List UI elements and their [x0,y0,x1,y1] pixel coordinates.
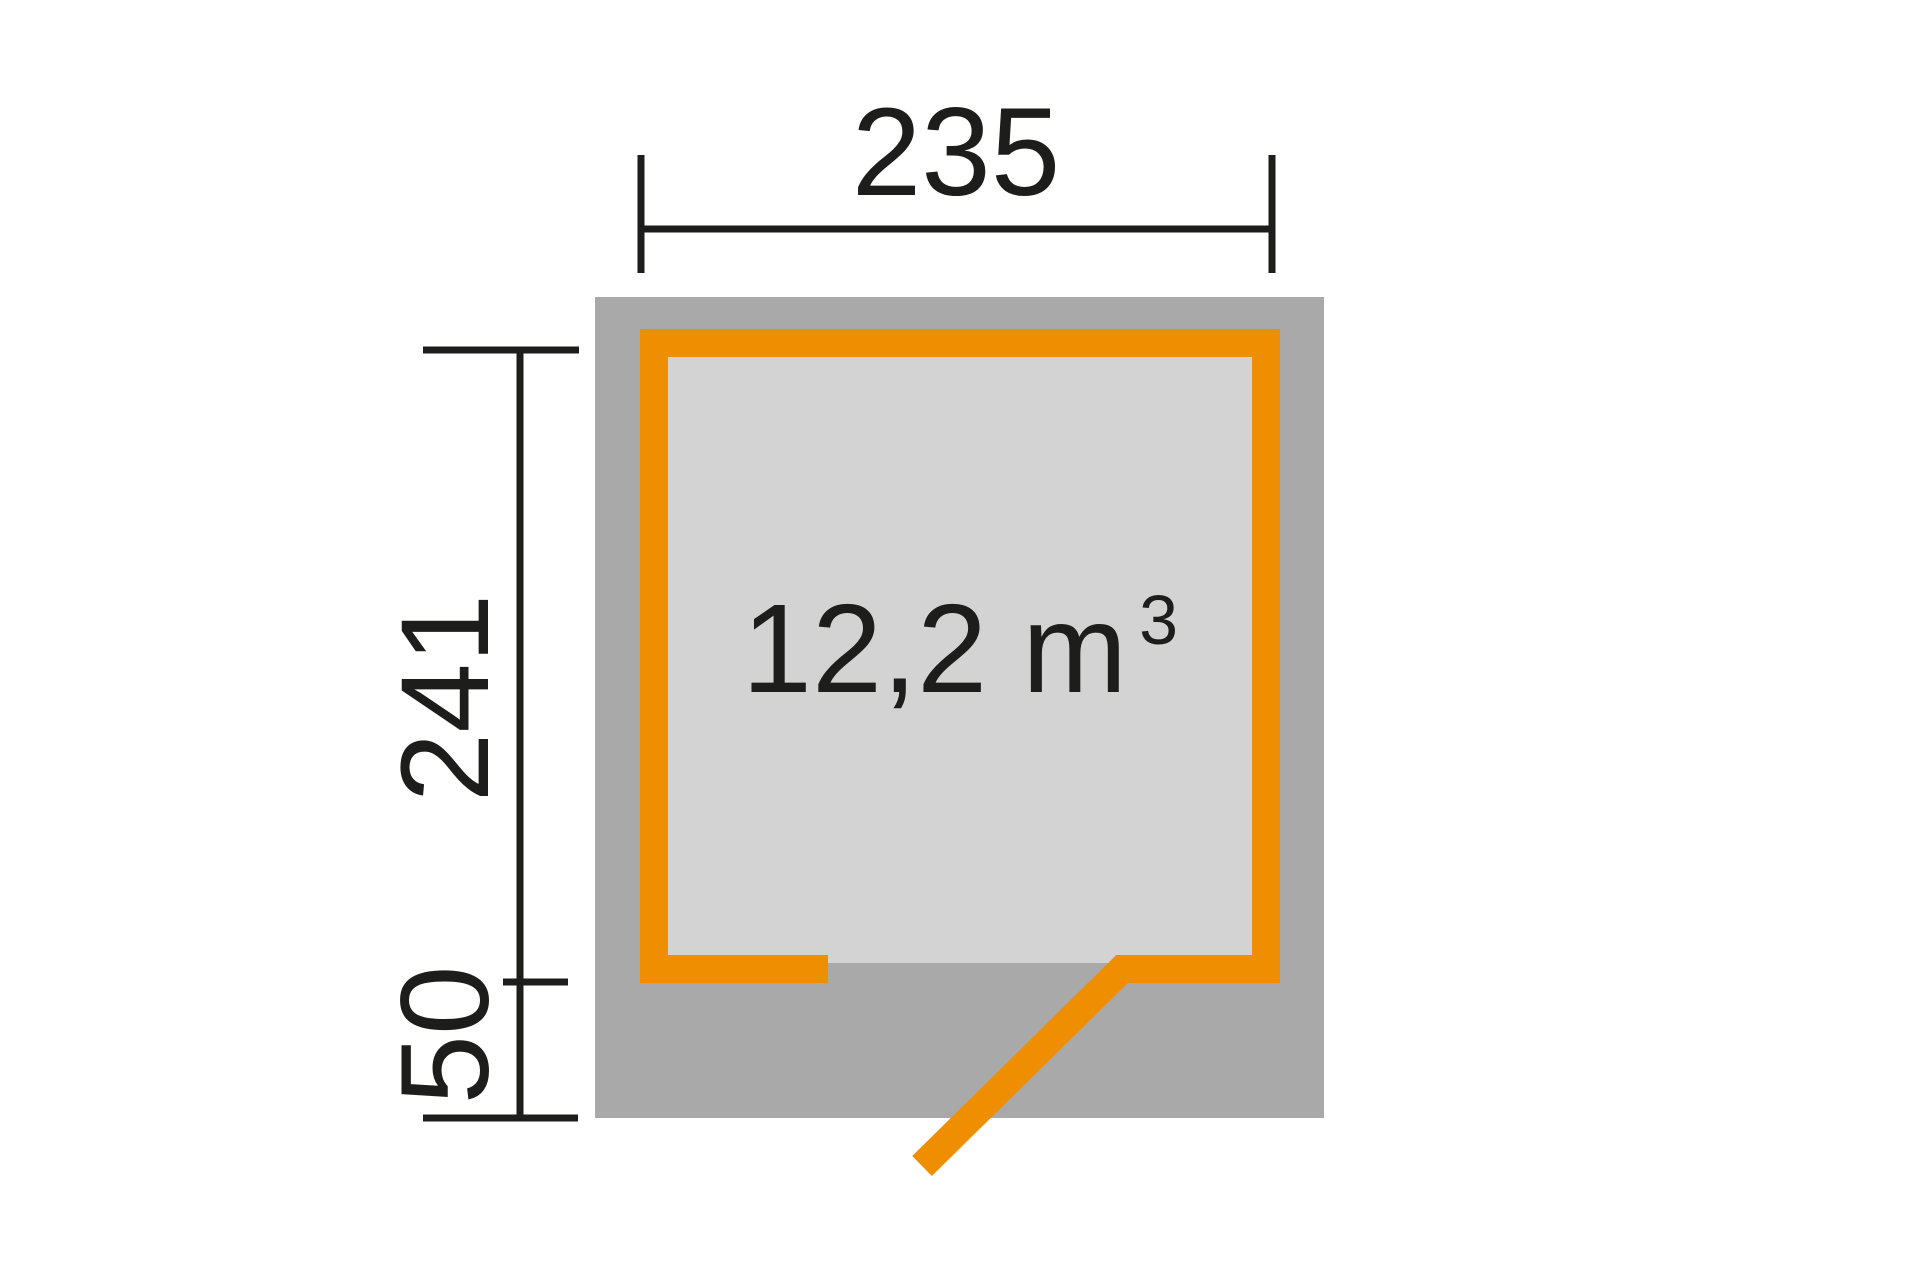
volume-superscript: 3 [1139,581,1178,659]
door-offset-dimension-label: 50 [376,965,515,1104]
depth-dimension-label: 241 [376,594,515,803]
floor-plan-diagram: 235 241 50 12,2 m3 [0,0,1920,1281]
width-dimension-label: 235 [852,83,1061,222]
volume-value: 12,2 m [742,578,1127,719]
floor-plan-page: 235 241 50 12,2 m3 [0,0,1920,1281]
volume-label: 12,2 m3 [742,578,1178,719]
